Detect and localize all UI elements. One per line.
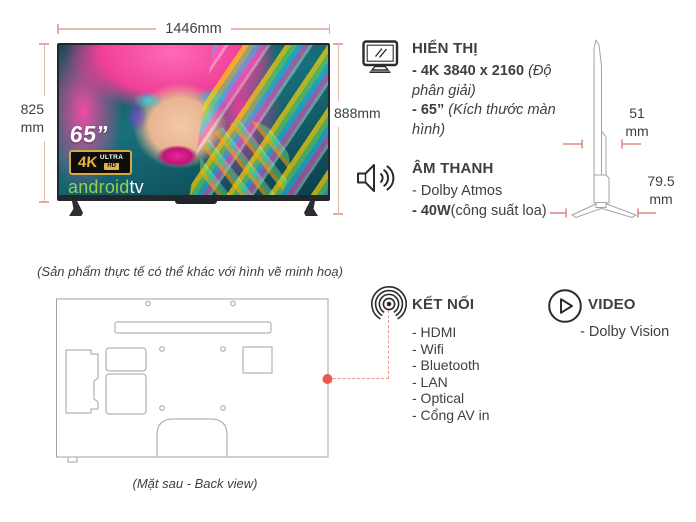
vent-slot: [115, 322, 271, 333]
connector-dot: [323, 374, 333, 384]
dimension-line: [338, 127, 340, 214]
screen-size-overlay: 65”: [69, 121, 110, 148]
spec-item: - 65” (Kích thước màn hình): [412, 101, 566, 140]
tv-right-foot: [304, 200, 321, 216]
dimension-tick: [329, 24, 331, 34]
screw-hole: [146, 301, 151, 306]
width-dimension: 1446mm: [57, 22, 330, 36]
dimension-tick: [333, 213, 343, 215]
tv-left-foot: [66, 200, 83, 216]
vesa-hole: [160, 347, 165, 352]
video-spec-title: VIDEO: [588, 296, 693, 313]
screw-hole: [231, 301, 236, 306]
androidtv-logo: androidtv: [68, 177, 144, 195]
stand-neck: [596, 203, 606, 208]
speaker-icon: [355, 159, 401, 199]
dimension-line: [59, 28, 157, 30]
tv-screen-image: 65” 4K ULTRA HD androidtv: [59, 45, 328, 195]
connectivity-item: - HDMI: [412, 324, 562, 341]
video-spec-block: VIDEO: [588, 296, 693, 313]
broadcast-icon: [368, 286, 410, 326]
play-icon: [547, 288, 583, 324]
video-item: - Dolby Vision: [580, 324, 690, 341]
side-panel-outline: [594, 40, 609, 203]
tv-back-view: [55, 295, 333, 467]
bottom-notch: [68, 457, 77, 462]
depth-dimension-label: 51 mm: [616, 104, 658, 140]
tv-front-view: 65” 4K ULTRA HD androidtv: [57, 43, 330, 201]
connectivity-items: - HDMI - Wifi - Bluetooth - LAN - Optica…: [412, 324, 562, 424]
connectivity-item: - Bluetooth: [412, 357, 562, 374]
display-spec-block: HIỂN THỊ - 4K 3840 x 2160 (Độ phân giải)…: [412, 40, 566, 140]
height-dimension-label: 825 mm: [6, 100, 44, 136]
tv-spec-diagram: 1446mm 65” 4K ULTRA HD androidtv 825 mm: [0, 0, 696, 522]
4k-ultra-hd-badge: 4K ULTRA HD: [69, 150, 132, 175]
monitor-icon: [362, 40, 400, 75]
width-dimension-label: 1446mm: [156, 21, 230, 37]
connectivity-item: - LAN: [412, 374, 562, 391]
port-box: [106, 348, 146, 371]
port-bracket: [66, 350, 98, 413]
vesa-hole: [221, 406, 226, 411]
port-box: [106, 374, 146, 414]
display-spec-title: HIỂN THỊ: [412, 40, 566, 57]
connector-line: [333, 378, 389, 379]
display-spec-items: - 4K 3840 x 2160 (Độ phân giải) - 65” (K…: [412, 62, 566, 140]
stand-right-leg: [602, 203, 636, 218]
connectivity-item: - Optical: [412, 390, 562, 407]
connectivity-spec-title: KẾT NỐI: [412, 296, 562, 313]
dimension-line: [44, 141, 46, 202]
connectivity-item: - Cổng AV in: [412, 407, 562, 424]
base-depth-dimension-label: 79.5 mm: [638, 172, 684, 208]
dimension-line: [338, 45, 340, 101]
vesa-hole: [160, 406, 165, 411]
back-view-caption: (Mặt sau - Back view): [95, 476, 295, 491]
dimension-tick: [39, 201, 49, 203]
connectivity-spec-block: KẾT NỐI - HDMI - Wifi - Bluetooth - LAN …: [412, 296, 562, 424]
total-height-dimension-label: 888mm: [334, 104, 381, 122]
dimension-line: [231, 28, 329, 30]
tv-bottom-logo-tab: [175, 199, 217, 204]
power-box: [243, 347, 272, 373]
stand-mount-cover: [157, 419, 227, 457]
vesa-hole: [221, 347, 226, 352]
spec-item: - 4K 3840 x 2160 (Độ phân giải): [412, 62, 566, 101]
connectivity-item: - Wifi: [412, 341, 562, 358]
disclaimer-text: (Sản phẩm thực tế có thể khác với hình v…: [25, 264, 355, 279]
dimension-line: [44, 45, 46, 96]
